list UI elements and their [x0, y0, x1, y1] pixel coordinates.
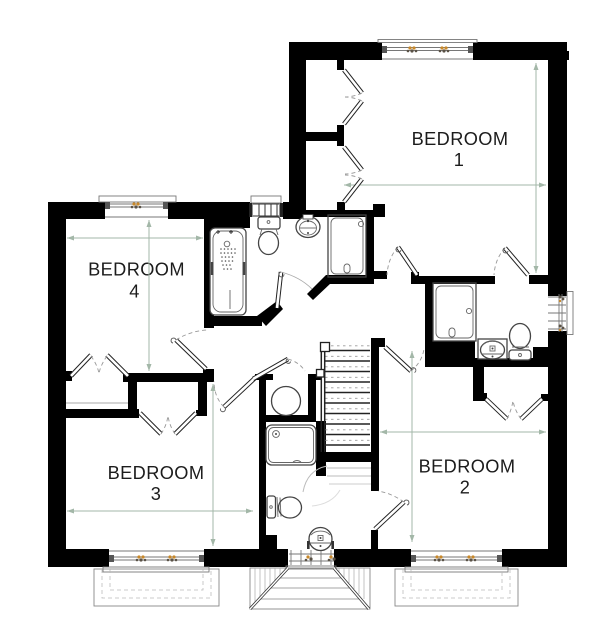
svg-text:BEDROOM: BEDROOM — [412, 129, 509, 149]
svg-text:4: 4 — [129, 282, 140, 302]
svg-text:1: 1 — [454, 150, 465, 170]
svg-text:3: 3 — [151, 484, 162, 504]
svg-text:BEDROOM: BEDROOM — [419, 457, 516, 477]
svg-text:BEDROOM: BEDROOM — [88, 260, 185, 280]
svg-text:2: 2 — [460, 478, 471, 498]
svg-text:BEDROOM: BEDROOM — [108, 463, 205, 483]
